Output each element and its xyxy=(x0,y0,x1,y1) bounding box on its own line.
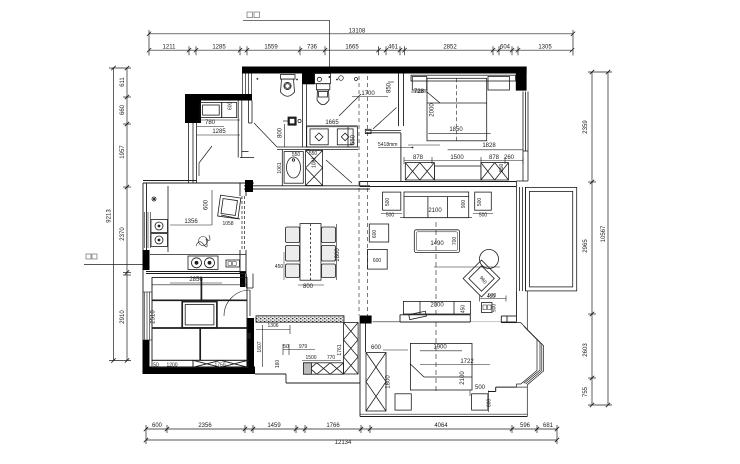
svg-text:1490: 1490 xyxy=(430,241,444,247)
svg-text:260: 260 xyxy=(504,155,515,161)
svg-text:600: 600 xyxy=(487,399,493,408)
svg-text:1285: 1285 xyxy=(212,129,226,135)
svg-text:979: 979 xyxy=(299,344,308,350)
svg-text:1800: 1800 xyxy=(335,248,341,262)
svg-text:1665: 1665 xyxy=(325,120,339,126)
svg-text:550: 550 xyxy=(351,134,357,145)
svg-text:2000: 2000 xyxy=(430,103,436,117)
svg-text:450: 450 xyxy=(461,305,467,314)
svg-text:596: 596 xyxy=(520,423,531,429)
svg-text:50: 50 xyxy=(153,362,159,368)
svg-text:600: 600 xyxy=(372,230,378,239)
svg-text:1559: 1559 xyxy=(264,45,278,51)
svg-text:600: 600 xyxy=(228,101,234,110)
svg-text:1766: 1766 xyxy=(326,423,340,429)
svg-text:9213: 9213 xyxy=(107,209,113,223)
svg-text:770: 770 xyxy=(327,355,336,361)
svg-text:850: 850 xyxy=(387,82,393,93)
svg-text:550: 550 xyxy=(292,152,301,158)
svg-text:1500: 1500 xyxy=(305,355,316,361)
svg-text:900: 900 xyxy=(461,200,467,209)
svg-text:755: 755 xyxy=(583,386,589,397)
svg-text:500: 500 xyxy=(477,198,483,207)
svg-text:10567: 10567 xyxy=(601,225,607,242)
svg-text:1285: 1285 xyxy=(212,45,226,51)
svg-text:160: 160 xyxy=(275,360,281,369)
svg-text:681: 681 xyxy=(543,423,554,429)
svg-text:1665: 1665 xyxy=(345,45,359,51)
svg-text:1761: 1761 xyxy=(337,344,343,355)
svg-text:2603: 2603 xyxy=(583,343,589,357)
svg-text:2000: 2000 xyxy=(430,303,444,309)
svg-text:1061: 1061 xyxy=(277,162,283,173)
svg-text:970: 970 xyxy=(488,293,497,299)
svg-text:878: 878 xyxy=(413,155,424,161)
svg-text:2100: 2100 xyxy=(428,208,442,214)
svg-text:1200: 1200 xyxy=(166,362,177,368)
svg-text:1058: 1058 xyxy=(222,221,233,227)
svg-text:700: 700 xyxy=(452,237,458,246)
svg-text:2510: 2510 xyxy=(151,310,157,324)
svg-text:2356: 2356 xyxy=(198,423,212,429)
svg-text:780: 780 xyxy=(205,120,216,126)
svg-text:1306: 1306 xyxy=(267,323,278,329)
svg-text:1305: 1305 xyxy=(538,45,552,51)
svg-text:1500: 1500 xyxy=(450,155,464,161)
svg-text:500: 500 xyxy=(385,198,391,207)
svg-text:660: 660 xyxy=(120,104,126,115)
svg-text:1722: 1722 xyxy=(460,359,474,365)
svg-text:878: 878 xyxy=(489,155,500,161)
svg-text:1900: 1900 xyxy=(433,345,447,351)
svg-text:450: 450 xyxy=(275,264,284,270)
svg-text:1828: 1828 xyxy=(482,143,496,149)
svg-text:600: 600 xyxy=(373,258,382,264)
svg-text:50: 50 xyxy=(283,344,289,350)
svg-text:550: 550 xyxy=(499,163,505,172)
svg-text:2370: 2370 xyxy=(120,227,126,241)
svg-text:600: 600 xyxy=(371,345,382,351)
svg-text:1459: 1459 xyxy=(267,423,281,429)
svg-text:2852: 2852 xyxy=(443,45,457,51)
svg-text:1850: 1850 xyxy=(449,127,463,133)
svg-text:1356: 1356 xyxy=(184,219,198,225)
svg-text:12134: 12134 xyxy=(335,440,352,446)
svg-text:600: 600 xyxy=(152,423,163,429)
svg-text:2100: 2100 xyxy=(460,371,466,385)
svg-text:1800: 1800 xyxy=(386,375,392,389)
svg-text:4064: 4064 xyxy=(434,423,448,429)
svg-text:1211: 1211 xyxy=(163,45,177,51)
svg-text:461: 461 xyxy=(388,45,399,51)
svg-text:500: 500 xyxy=(492,304,498,313)
svg-text:550: 550 xyxy=(309,151,318,157)
svg-text:611: 611 xyxy=(120,77,126,87)
svg-text:2359: 2359 xyxy=(583,120,589,134)
svg-text:800: 800 xyxy=(278,127,284,138)
svg-text:1750: 1750 xyxy=(214,362,225,368)
svg-text:13108: 13108 xyxy=(349,29,366,35)
svg-text:604: 604 xyxy=(500,45,511,51)
svg-text:2965: 2965 xyxy=(583,239,589,253)
svg-text:1700: 1700 xyxy=(361,91,375,97)
svg-text:1081: 1081 xyxy=(312,157,318,168)
svg-text:600: 600 xyxy=(204,199,210,210)
svg-text:736: 736 xyxy=(307,45,318,51)
svg-text:500: 500 xyxy=(475,385,486,391)
svg-text:2910: 2910 xyxy=(120,310,126,324)
svg-text:1607: 1607 xyxy=(257,341,263,352)
svg-text:5418mm: 5418mm xyxy=(378,142,397,148)
svg-text:1957: 1957 xyxy=(120,145,126,159)
